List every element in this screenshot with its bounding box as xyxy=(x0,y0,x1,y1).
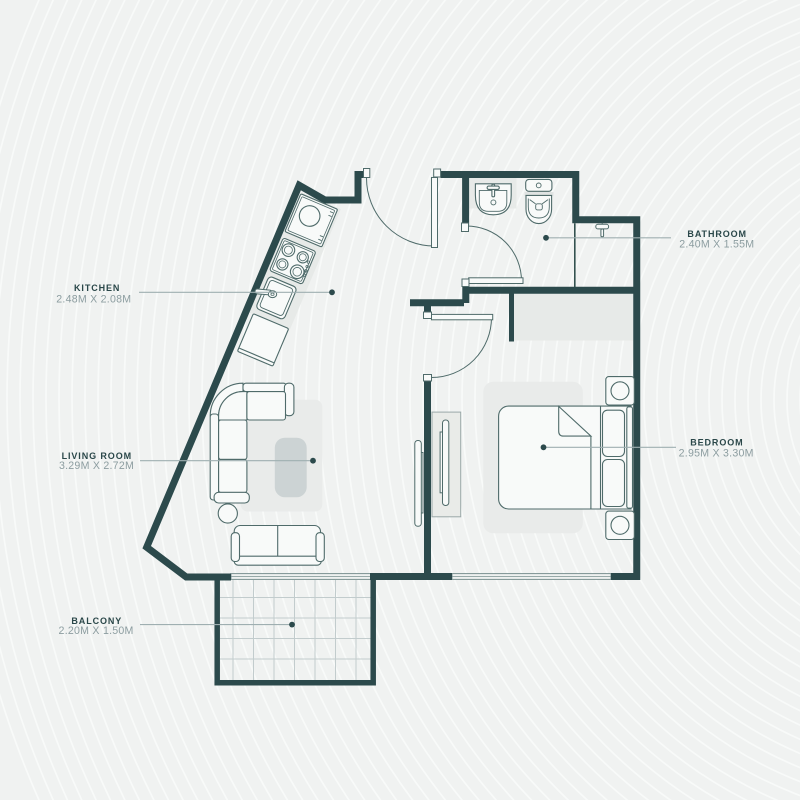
svg-text:KITCHEN: KITCHEN xyxy=(74,283,120,293)
svg-text:2.95M X 3.30M: 2.95M X 3.30M xyxy=(679,447,754,459)
svg-text:2.40M X 1.55M: 2.40M X 1.55M xyxy=(679,239,754,251)
svg-text:3.29M X 2.72M: 3.29M X 2.72M xyxy=(59,460,134,472)
svg-text:BATHROOM: BATHROOM xyxy=(687,229,747,239)
svg-text:2.20M X 1.50M: 2.20M X 1.50M xyxy=(59,625,134,637)
svg-text:BEDROOM: BEDROOM xyxy=(690,438,743,448)
svg-text:2.48M X 2.08M: 2.48M X 2.08M xyxy=(56,294,131,306)
